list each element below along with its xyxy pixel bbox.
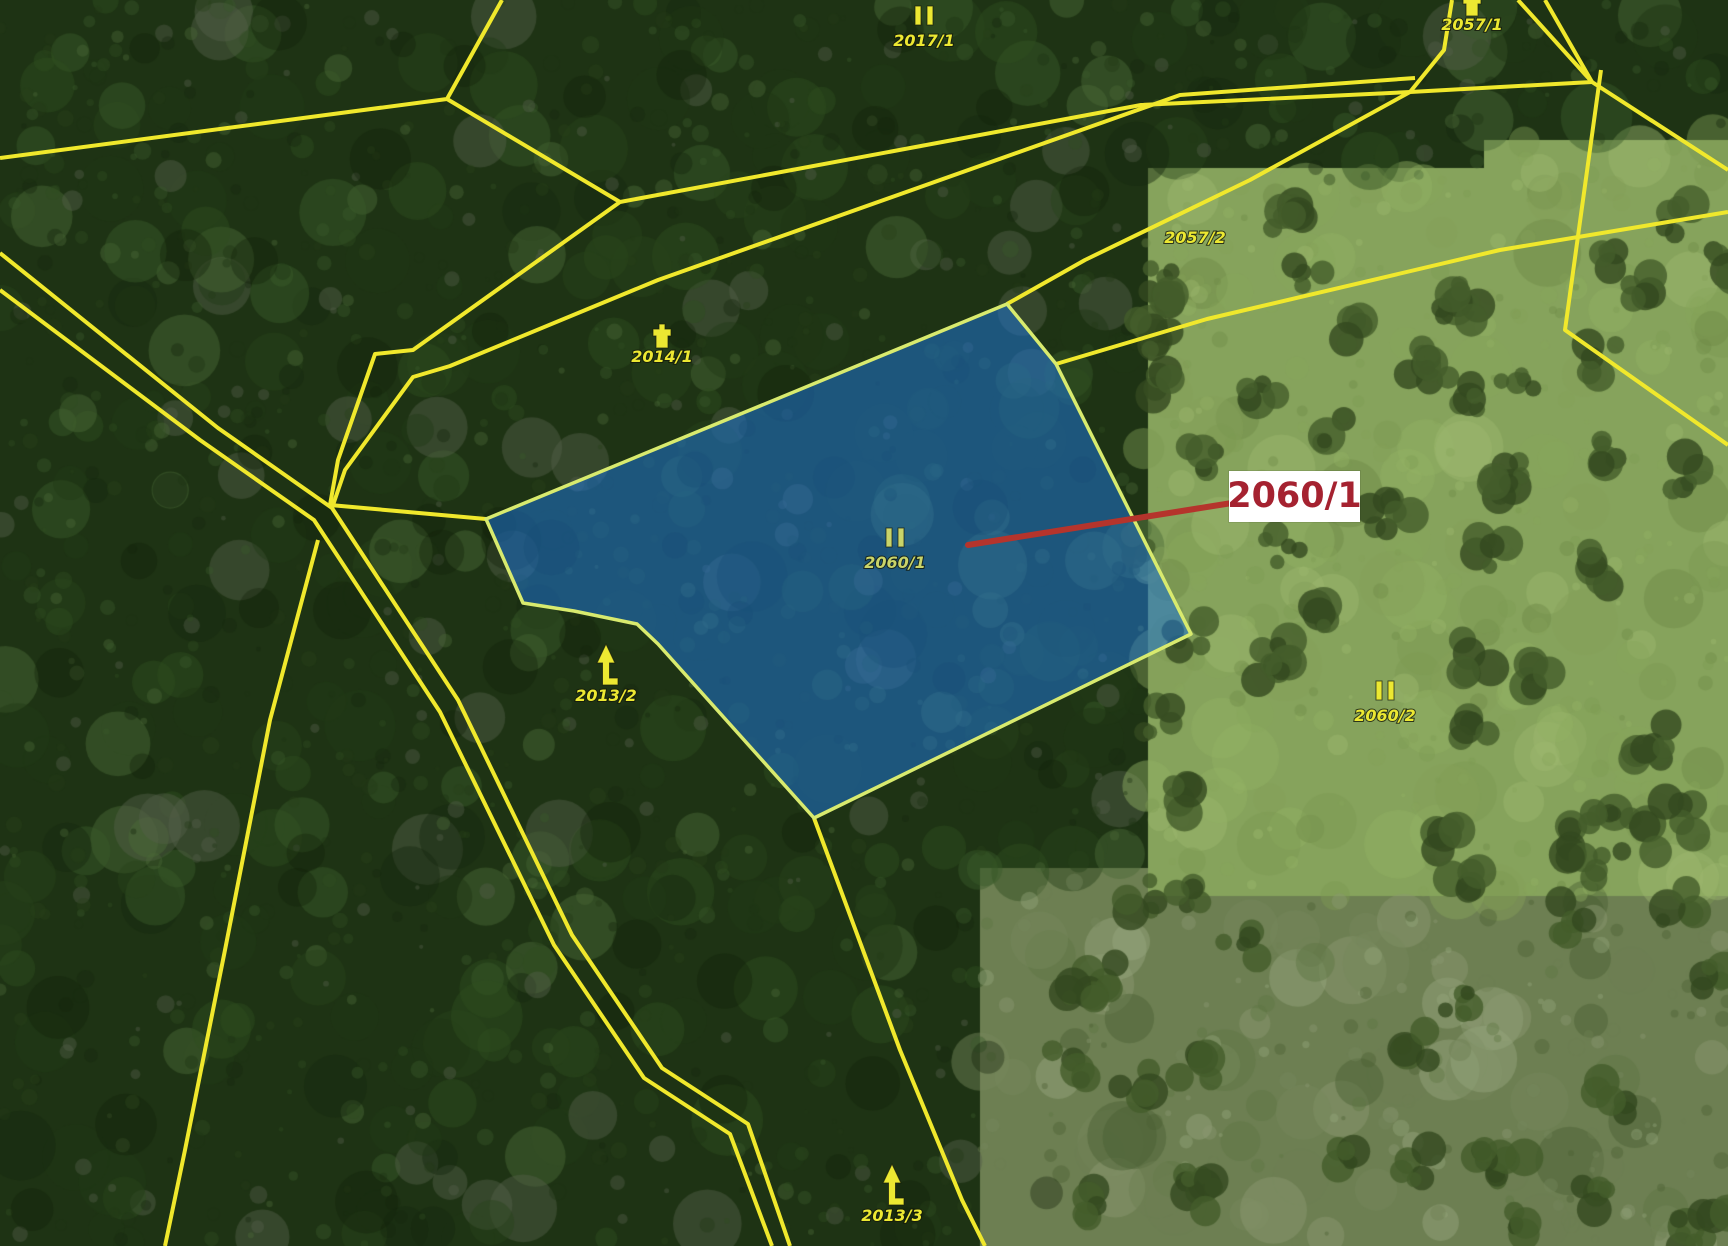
parcel-label-2013-3: 2013/3: [861, 1164, 923, 1225]
meadow-symbol-icon: [915, 6, 933, 25]
parcel-boundary-line: [330, 505, 486, 519]
parcel-boundary-line: [447, 99, 620, 202]
parcel-number: 2017/1: [893, 31, 955, 50]
map-viewport[interactable]: 2017/12057/12057/22014/12060/12060/22013…: [0, 0, 1728, 1246]
parcel-label-2057-2: 2057/2: [1164, 228, 1226, 247]
selected-parcel-2060-1[interactable]: [486, 304, 1191, 818]
parcel-label-2013-2: 2013/2: [575, 644, 637, 705]
parcel-number: 2014/1: [631, 347, 693, 366]
parcel-boundary-line: [1565, 70, 1728, 445]
parcel-label-2060-2: 2060/2: [1354, 681, 1416, 725]
parcel-boundary-line: [1410, 0, 1592, 92]
parcel-number: 2057/2: [1164, 228, 1226, 247]
parcel-number: 2060/1: [864, 553, 926, 572]
parcel-boundary-line: [1410, 0, 1452, 92]
building-symbol-icon: [653, 324, 671, 348]
conifer-symbol-icon: [597, 644, 618, 685]
parcel-callout-label: 2060/1: [1227, 479, 1362, 514]
parcel-boundary-line: [165, 540, 318, 1246]
parcel-boundary-line: [0, 290, 772, 1246]
conifer-symbol-icon: [883, 1164, 904, 1205]
parcel-boundary-line: [1007, 92, 1410, 304]
map-overlay: 2017/12057/12057/22014/12060/12060/22013…: [0, 0, 1728, 1246]
parcel-label-2017-1: 2017/1: [893, 6, 955, 50]
parcel-number: 2057/1: [1441, 15, 1503, 34]
parcel-boundary-line: [1056, 212, 1728, 364]
parcel-callout: 2060/1: [1229, 471, 1360, 522]
building-symbol-icon: [1463, 0, 1481, 16]
parcel-number: 2013/2: [575, 686, 637, 705]
parcel-boundary-line: [0, 0, 502, 158]
parcel-label-2014-1: 2014/1: [631, 324, 693, 366]
parcel-boundary-line: [1518, 0, 1592, 82]
meadow-symbol-icon: [1376, 681, 1394, 700]
parcel-number: 2060/2: [1354, 706, 1416, 725]
parcel-number: 2013/3: [861, 1206, 923, 1225]
parcel-boundary-line: [1592, 82, 1728, 170]
